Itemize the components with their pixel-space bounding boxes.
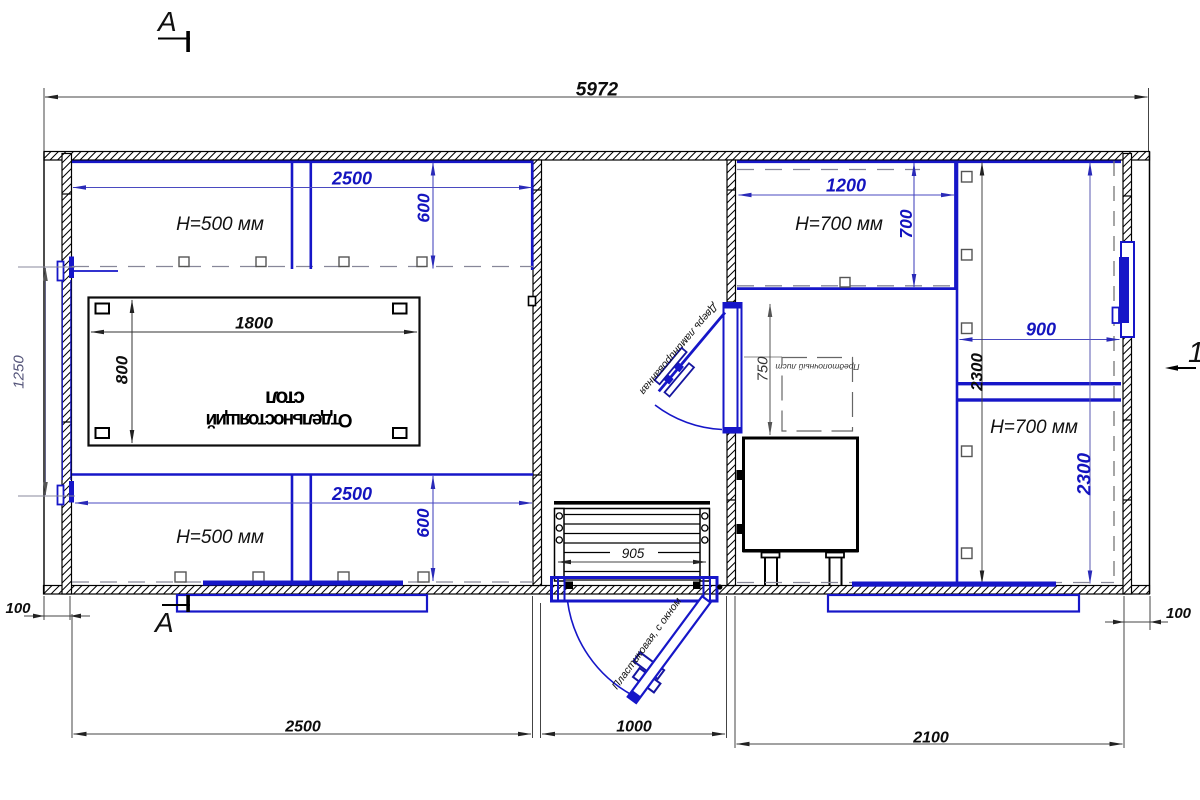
svg-text:100: 100: [5, 600, 31, 617]
svg-text:600: 600: [414, 193, 434, 222]
svg-text:H=700 мм: H=700 мм: [795, 214, 883, 235]
svg-text:1200: 1200: [826, 176, 866, 196]
svg-text:Предтопочный лист: Предтопочный лист: [775, 362, 859, 372]
svg-text:905: 905: [622, 546, 645, 561]
svg-text:2500: 2500: [284, 719, 321, 736]
svg-text:600: 600: [413, 508, 433, 537]
svg-text:2100: 2100: [912, 730, 949, 747]
svg-text:1: 1: [1188, 337, 1200, 369]
svg-text:A: A: [156, 6, 177, 37]
svg-text:2300: 2300: [1075, 452, 1096, 496]
svg-text:A: A: [153, 607, 174, 638]
svg-text:1000: 1000: [616, 719, 652, 736]
svg-text:2500: 2500: [331, 484, 372, 504]
svg-text:750: 750: [755, 356, 772, 382]
svg-text:1250: 1250: [11, 355, 28, 389]
svg-text:H=500 мм: H=500 мм: [176, 527, 264, 548]
svg-text:стол: стол: [265, 387, 305, 410]
svg-text:1800: 1800: [235, 314, 273, 333]
svg-text:H=700 мм: H=700 мм: [990, 417, 1078, 438]
svg-text:5972: 5972: [576, 80, 619, 101]
svg-text:Отдельностоящий: Отдельностоящий: [206, 409, 353, 430]
svg-text:2300: 2300: [968, 353, 987, 392]
svg-text:H=500 мм: H=500 мм: [176, 214, 264, 235]
svg-text:700: 700: [896, 209, 916, 238]
svg-text:2500: 2500: [331, 169, 372, 189]
svg-text:800: 800: [113, 355, 132, 384]
svg-text:100: 100: [1166, 605, 1192, 622]
svg-text:900: 900: [1026, 320, 1056, 340]
